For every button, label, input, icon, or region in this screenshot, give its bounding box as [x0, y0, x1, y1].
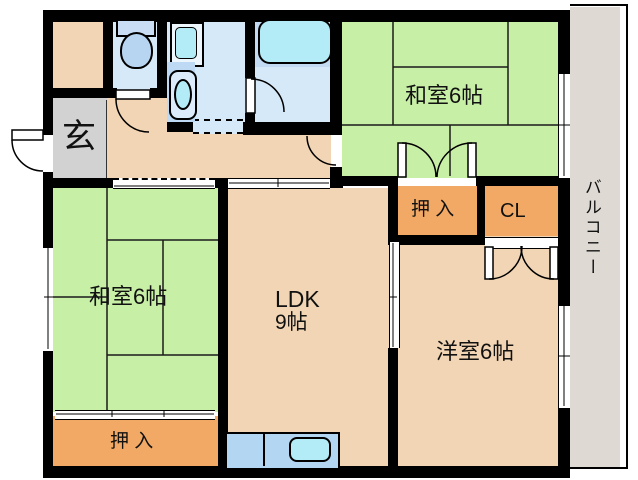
genkan-label: 玄: [62, 120, 96, 156]
wall-bath-bottom: [243, 122, 342, 135]
window-balcony-western: [559, 305, 570, 409]
wall-toilet-bottom-r: [150, 88, 167, 98]
washing-machine-tub-icon: [175, 27, 197, 59]
sliding-door-hall-washitsu: [113, 178, 215, 189]
wall-oshiire-top-left: [388, 178, 398, 242]
floor-plan: 玄 和室6帖 和室6帖 LDK 9帖 洋室6帖 押 入 CL 押 入 バルコニー: [0, 0, 638, 480]
closet-door-gap: [485, 237, 558, 249]
closet-floor: [485, 186, 567, 236]
window-left: [43, 247, 53, 352]
ldk-label: LDK: [275, 287, 320, 311]
wall-toilet-right: [157, 10, 167, 98]
kitchen-sink-icon: [289, 437, 331, 462]
closet-label: CL: [500, 201, 526, 222]
balcony-label: バルコニー: [582, 178, 600, 313]
washbasin-bowl-icon: [174, 79, 192, 110]
wall-washitsu-tr-bottom-r: [476, 176, 570, 186]
oshiire-bottom-label: 押 入: [110, 432, 153, 452]
ldk-size-label: 9帖: [275, 312, 308, 334]
balcony-border-bottom: [570, 467, 628, 469]
wall-oshiire-top-bottom: [388, 235, 485, 245]
wall-toilet-bottom-l: [103, 88, 117, 98]
wall-ldk-western-lower: [388, 348, 398, 466]
toilet-bowl-icon: [120, 32, 153, 69]
wall-toilet-left: [103, 10, 113, 98]
ldk-floor: [228, 188, 389, 466]
kitchen-counter-divider: [263, 432, 265, 466]
wall-hall-bottom-left: [43, 178, 113, 188]
wall-wash-bath-upper: [245, 10, 255, 78]
sliding-door-oshiire-bottom: [55, 410, 215, 420]
entrance-door-gap: [43, 135, 53, 172]
window-balcony-washitsu: [559, 73, 570, 179]
oshiire-top-label: 押 入: [411, 200, 454, 220]
washitsu-left-label: 和室6帖: [89, 285, 167, 308]
bathtub-icon: [258, 19, 332, 64]
balcony-border-right: [626, 4, 628, 469]
washitsu-top-right-label: 和室6帖: [405, 84, 483, 107]
sliding-door-hall-ldk: [228, 178, 330, 189]
washroom-open-entry: [193, 119, 243, 134]
washitsu-tr-door-gap: [331, 135, 342, 167]
hallway-floor-1: [107, 98, 169, 188]
balcony-border-top: [570, 4, 628, 6]
western-room-label: 洋室6帖: [436, 340, 514, 363]
wall-oshiire-cl-divider: [477, 186, 485, 235]
sliding-door-ldk-western: [389, 242, 400, 348]
wall-left: [43, 10, 53, 478]
storage-room-floor: [48, 15, 105, 93]
